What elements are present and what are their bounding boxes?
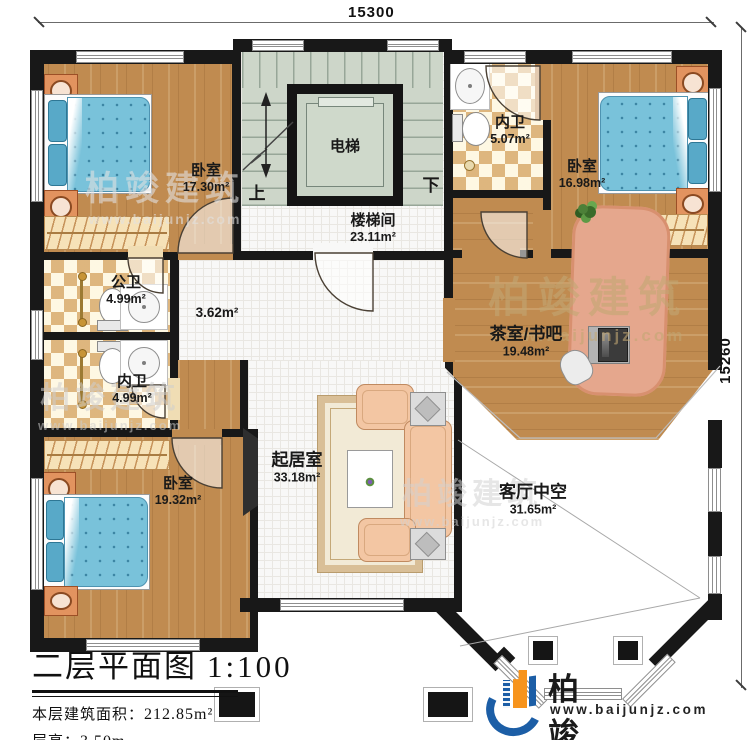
bed — [67, 97, 150, 192]
plan-scale: 1:100 — [207, 649, 293, 684]
window — [387, 40, 439, 51]
side-table — [410, 392, 446, 426]
toilet — [462, 112, 490, 146]
title-underline — [32, 690, 238, 697]
nightstand — [44, 586, 78, 616]
room-label-inner-bath: 内卫 4.99m² — [112, 373, 152, 405]
towel-rail — [80, 352, 83, 404]
logo-building-bar — [529, 676, 536, 707]
sofa — [358, 518, 416, 562]
window — [31, 478, 43, 590]
plant — [578, 204, 588, 214]
sink — [455, 68, 485, 104]
logo-building-bar — [503, 680, 510, 708]
floor-area-value: 212.85m² — [144, 706, 213, 723]
room-label-bath-top: 内卫 5.07m² — [490, 114, 530, 146]
plan-title-text: 二层平面图 — [32, 649, 197, 684]
void-opening-lines — [458, 440, 700, 646]
coffee-table — [347, 450, 393, 508]
room-label-hall: 3.62m² — [196, 305, 239, 321]
room-label-tea-room: 茶室/书吧 19.48m² — [490, 325, 563, 360]
floor-height-line: 层高：3.50m — [32, 730, 293, 740]
pillow — [688, 142, 707, 184]
pillow — [48, 100, 67, 142]
rail-knob — [78, 272, 87, 281]
wardrobe — [44, 440, 170, 470]
door-opening — [128, 246, 163, 260]
door-opening — [462, 243, 520, 258]
wardrobe — [44, 216, 170, 250]
title-block: 二层平面图1:100 本层建筑面积：212.85m² 层高：3.50m — [32, 641, 293, 740]
door-opening — [313, 243, 373, 260]
window-bay — [622, 654, 676, 708]
stair-up-label: 上 — [249, 184, 266, 204]
computer-monitor — [598, 328, 628, 362]
room-label-public-bath: 公卫 4.99m² — [106, 274, 146, 306]
room-label-stairwell: 楼梯间 23.11m² — [350, 212, 396, 244]
window — [31, 90, 43, 202]
dimension-top-value: 15300 — [348, 4, 395, 21]
bed — [600, 96, 688, 191]
dimension-line-right — [741, 28, 742, 688]
pillow — [46, 500, 64, 540]
plan-title: 二层平面图1:100 — [32, 641, 293, 686]
floor-area-line: 本层建筑面积：212.85m² — [32, 703, 293, 724]
column — [533, 641, 553, 660]
stair-down-label: 下 — [423, 176, 440, 196]
room-label-bedroom-top-left: 卧室 17.30m² — [183, 162, 230, 194]
rail-knob — [78, 349, 87, 358]
bed — [64, 497, 148, 587]
wall-segment — [708, 512, 722, 556]
door-opening — [178, 244, 233, 260]
company-logo-icon — [486, 668, 542, 726]
window — [708, 468, 721, 512]
window — [31, 310, 43, 360]
room-label-elevator: 电梯 — [330, 138, 360, 156]
pillow — [688, 98, 707, 140]
room-label-bedroom-bottom-left: 卧室 19.32m² — [155, 475, 202, 507]
door-opening — [172, 429, 222, 445]
floor-height-value: 3.50m — [80, 733, 125, 740]
window — [709, 88, 721, 192]
window — [708, 556, 721, 594]
door-opening — [535, 64, 551, 120]
side-table — [410, 528, 446, 560]
room-label-void: 客厅中空 31.65m² — [499, 483, 567, 518]
room-label-living: 起居室 33.18m² — [272, 451, 323, 486]
window — [572, 51, 672, 63]
window — [252, 40, 304, 51]
logo-building-bar — [513, 670, 527, 708]
rail-knob — [78, 318, 87, 327]
company-website: www.baijunjz.com — [550, 702, 708, 717]
door-opening — [168, 378, 180, 420]
porch-column — [428, 692, 468, 717]
pillow — [46, 542, 64, 582]
stair-treads-top — [242, 48, 443, 88]
door-opening — [443, 298, 455, 362]
column — [618, 641, 638, 660]
window — [280, 599, 404, 611]
room-label-bedroom-top-right: 卧室 16.98m² — [559, 158, 606, 190]
dimension-line-top — [38, 22, 714, 23]
floor-plan-canvas: 柏竣建筑 www.baijunjz.com 柏竣建筑 www.baijunjz.… — [0, 0, 750, 740]
dimension-right-value: 15260 — [717, 337, 734, 384]
pillow — [48, 144, 67, 186]
door-opening — [533, 210, 551, 258]
window — [76, 51, 184, 63]
window — [464, 51, 526, 63]
wall-segment — [708, 420, 722, 468]
towel-rail — [80, 276, 83, 324]
floor-drain — [464, 160, 475, 171]
tv — [243, 428, 258, 516]
rail-knob — [78, 400, 87, 409]
